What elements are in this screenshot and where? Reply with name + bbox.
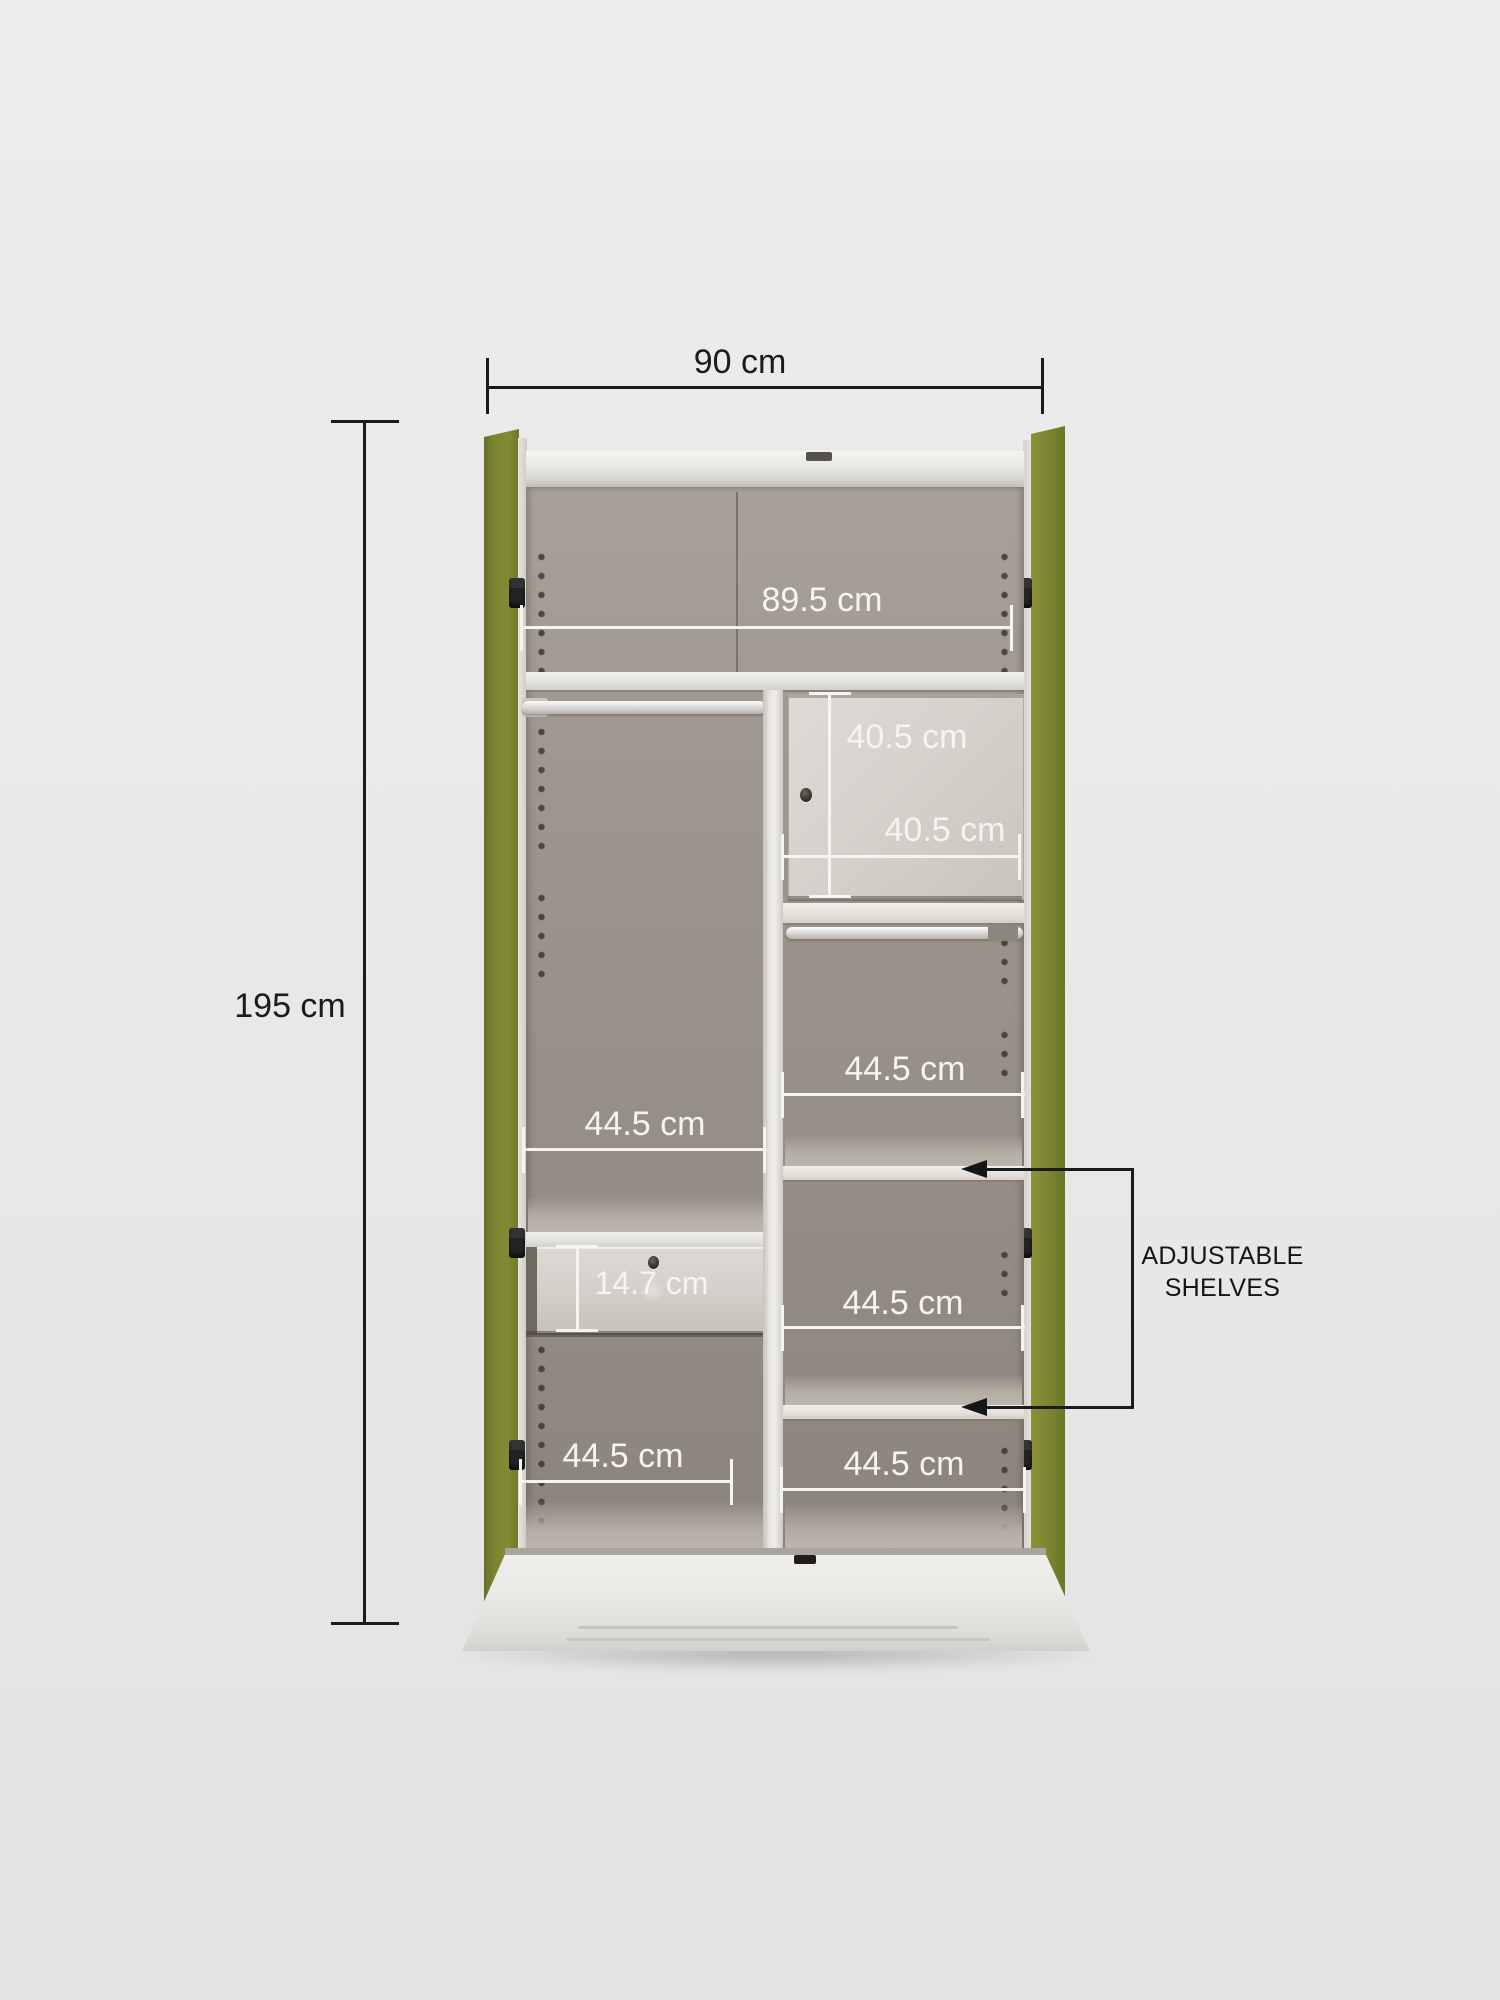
callout-arrow-line-upper — [984, 1168, 1134, 1171]
width-dimension-tick-right — [1041, 358, 1044, 414]
right-bottom-section-width-tick-right — [1023, 1467, 1026, 1513]
top-shelf-width-tick-left — [520, 605, 523, 651]
drawer-height-label: 14.7 cm — [584, 1263, 719, 1303]
callout-arrowhead-upper — [961, 1160, 987, 1178]
hanging-section-width-line — [524, 1148, 767, 1151]
cabinet-top-edge — [526, 451, 1024, 487]
left-bottom-section-width-tick-left — [519, 1459, 522, 1505]
shelf-holes — [537, 727, 546, 857]
right-upper-section-width-tick-left — [781, 1072, 784, 1118]
shelf-holes — [537, 552, 546, 685]
adjustable-shelves-label-line2: SHELVES — [1135, 1272, 1310, 1304]
right-rod-bracket — [988, 925, 1018, 941]
top-shelf-width-tick-right — [1010, 605, 1013, 651]
right-middle-section-width-label: 44.5 cm — [803, 1283, 1003, 1323]
right-bottom-section-width-line — [782, 1488, 1026, 1491]
center-divider — [763, 690, 783, 1555]
shelf-holes — [1000, 938, 1009, 990]
shelf-holes — [537, 893, 546, 989]
left-door-hinge-top — [509, 578, 525, 608]
locker-width-line — [783, 855, 1021, 858]
locker-height-label: 40.5 cm — [832, 717, 982, 757]
locker-base-shelf — [783, 903, 1024, 923]
drawer-height-line — [576, 1247, 579, 1332]
top-shelf — [526, 672, 1024, 690]
locker-width-label: 40.5 cm — [845, 810, 1045, 850]
left-bottom-section-width-tick-right — [730, 1459, 733, 1505]
adjustable-shelves-label-line1: ADJUSTABLE — [1135, 1240, 1310, 1272]
top-latch-slot — [806, 452, 832, 461]
right-upper-section-width-label: 44.5 cm — [805, 1049, 1005, 1089]
base-latch-slot — [794, 1555, 816, 1564]
width-dimension-line — [488, 386, 1043, 389]
callout-arrowhead-lower — [961, 1398, 987, 1416]
base-inner-edge — [505, 1548, 1046, 1555]
locker-height-tick-top — [809, 692, 851, 695]
base-groove-upper — [578, 1626, 958, 1629]
shelf-holes — [1000, 552, 1009, 685]
left-bottom-section-width-label: 44.5 cm — [523, 1436, 723, 1476]
hanging-section-width-tick-left — [522, 1127, 525, 1173]
right-middle-section-width-tick-right — [1021, 1305, 1024, 1351]
right-bottom-section-width-tick-left — [780, 1467, 783, 1513]
base-groove-lower — [566, 1638, 990, 1641]
left-bottom-section-width-line — [521, 1480, 733, 1483]
hanging-section-width-tick-right — [763, 1127, 766, 1173]
height-dimension-tick-top — [331, 420, 399, 423]
width-dimension-label: 90 cm — [640, 342, 840, 382]
right-middle-section-width-tick-left — [781, 1305, 784, 1351]
right-upper-section-width-line — [783, 1093, 1025, 1096]
locker-height-line — [828, 694, 831, 898]
hanging-rod — [522, 701, 766, 714]
hanging-section-width-label: 44.5 cm — [545, 1104, 745, 1144]
top-shelf-width-label: 89.5 cm — [722, 580, 922, 620]
callout-vertical-line — [1131, 1168, 1134, 1409]
drawer-height-tick-bottom — [556, 1329, 598, 1332]
callout-arrow-line-lower — [984, 1406, 1134, 1409]
width-dimension-tick-left — [486, 358, 489, 414]
right-bottom-section-width-label: 44.5 cm — [804, 1444, 1004, 1484]
left-door-hinge-middle — [509, 1228, 525, 1258]
locker-height-tick-bottom — [809, 895, 851, 898]
left-shelf-top-surface — [528, 1196, 764, 1234]
height-dimension-tick-bottom — [331, 1622, 399, 1625]
top-shelf-width-line — [522, 626, 1012, 629]
height-dimension-label: 195 cm — [190, 986, 390, 1026]
drawer-height-tick-top — [556, 1245, 598, 1248]
base-plinth — [462, 1548, 1090, 1651]
left-floor-surface — [526, 1500, 764, 1555]
right-upper-section-width-tick-right — [1021, 1072, 1024, 1118]
locker-width-tick-left — [781, 834, 784, 880]
wardrobe-dimension-diagram: 90 cm 195 cm — [0, 0, 1500, 2000]
locker-keyhole — [800, 788, 812, 802]
right-middle-section-width-line — [783, 1326, 1025, 1329]
right-door-panel — [1031, 424, 1065, 1637]
